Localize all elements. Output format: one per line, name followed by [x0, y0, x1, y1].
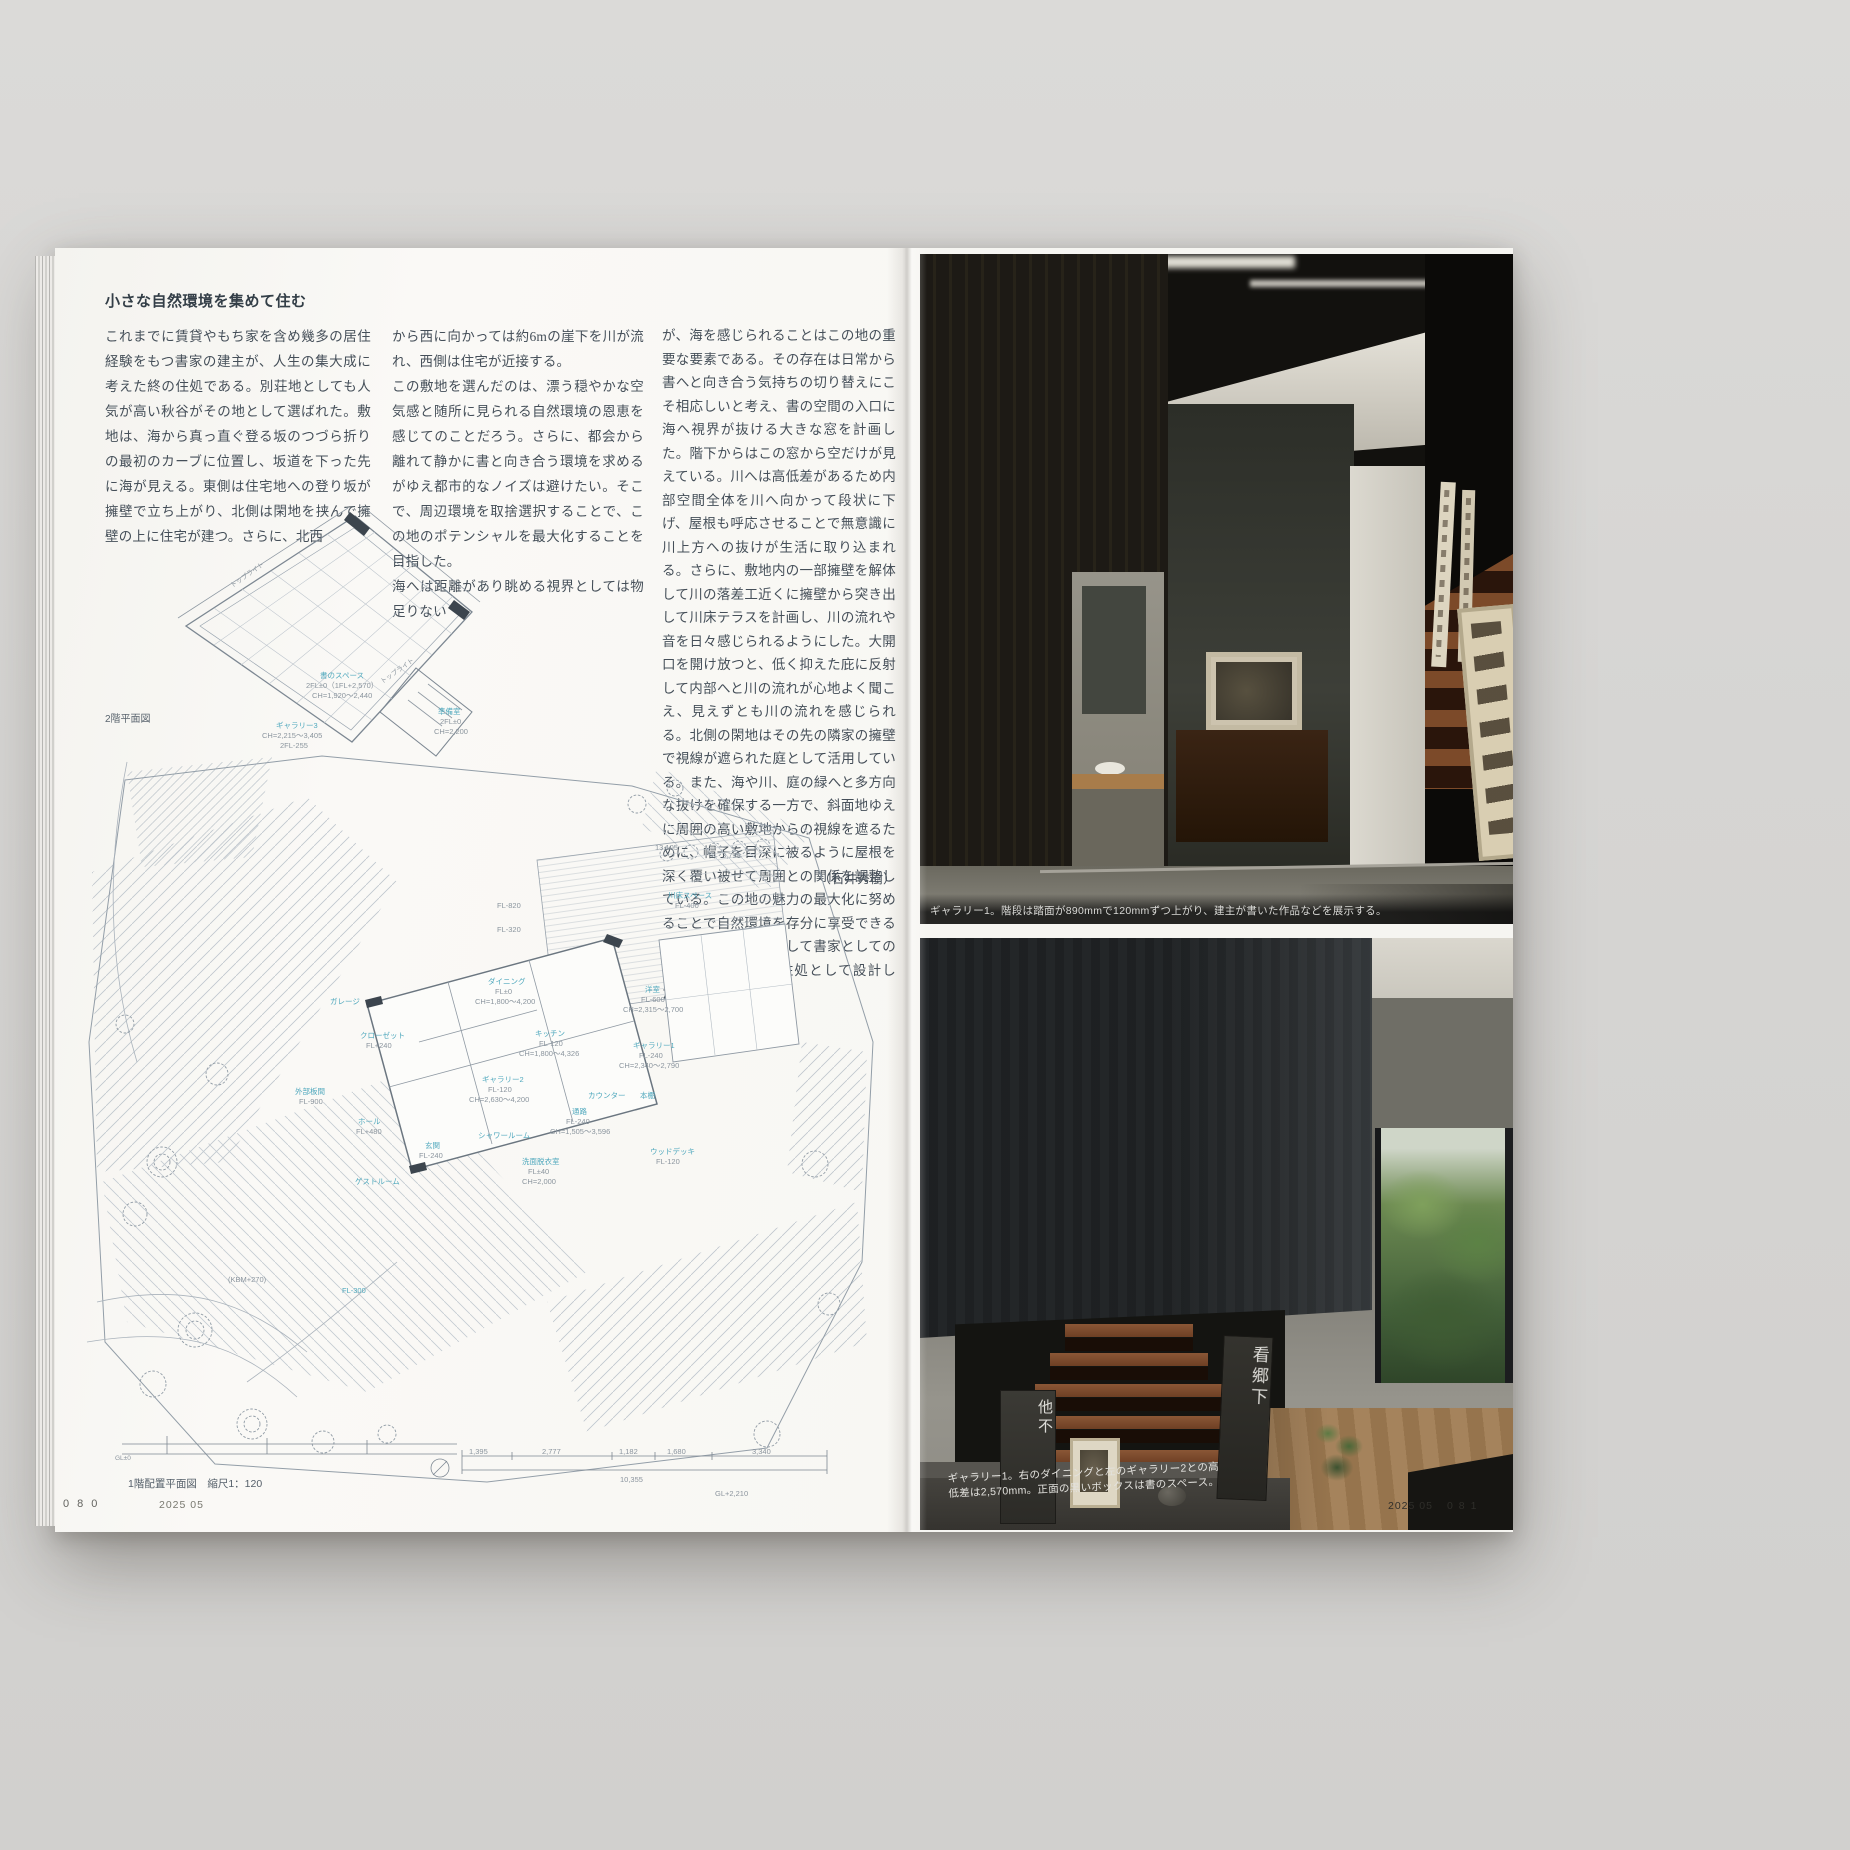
- calligraphy-text-left: 他不: [1001, 1399, 1055, 1437]
- plan-annotation-label: ウッドデッキ: [650, 1148, 695, 1156]
- plan-annotation-label: 1,395: [469, 1448, 488, 1456]
- plan-annotation-label: カウンター: [588, 1092, 626, 1100]
- plan-1f-caption: 1階配置平面図 縮尺1：120: [128, 1476, 262, 1491]
- left-page: 小さな自然環境を集めて住む これまでに賃貸やもち家を含め幾多の居住経験をもつ書家…: [55, 248, 905, 1532]
- plan-annotation-label: FL-240: [639, 1052, 663, 1060]
- plan-annotation-label: 2FL±0（1FL+2,570）: [306, 682, 378, 690]
- white-wall-volume: [1350, 466, 1432, 924]
- plan-annotation-label: FL-820: [497, 902, 521, 910]
- photo1-caption: ギャラリー1。階段は踏面が890mmで120mmずつ上がり、建主が書いた作品など…: [930, 903, 1387, 918]
- plan-annotation-label: ホール: [358, 1118, 381, 1126]
- plan-annotation-label: 1,182: [619, 1448, 638, 1456]
- black-box-volume: [920, 938, 1372, 1338]
- plan-2f-caption: 2階平面図: [105, 710, 151, 725]
- plan-annotation-label: 準備室: [438, 708, 461, 716]
- plan-annotation-label: GL+2,210: [715, 1490, 748, 1498]
- plan-annotation-label: 3,798: [722, 852, 741, 860]
- plan-annotation-label: FL±40: [528, 1168, 549, 1176]
- article-heading: 小さな自然環境を集めて住む: [105, 292, 307, 313]
- ceiling-light-slit-2: [1250, 280, 1440, 287]
- plan-annotation-label: FL-240: [419, 1152, 443, 1160]
- plan-annotation-label: CH=2,200: [434, 728, 468, 736]
- plan-annotation-label: FL-240: [566, 1118, 590, 1126]
- page-number-left: 080: [63, 1498, 105, 1510]
- plan-annotation-label: GL±0: [115, 1456, 131, 1463]
- issue-date-left: 2025 05: [159, 1499, 204, 1511]
- plan-annotation-label: FL+240: [366, 1042, 392, 1050]
- plan-annotation-label: FL-400: [675, 902, 699, 910]
- plan-annotation-label: CH=1,920〜2,440: [312, 692, 372, 700]
- washroom-mirror: [1082, 586, 1146, 714]
- plan-annotation-label: ギャラリー3: [276, 722, 318, 730]
- plan-annotation-label: クローゼット: [360, 1032, 405, 1040]
- plan-annotation-label: FL+480: [356, 1128, 382, 1136]
- magazine-spread: 小さな自然環境を集めて住む これまでに賃貸やもち家を含め幾多の居住経験をもつ書家…: [55, 248, 1513, 1532]
- page-number-right-value: 081: [1447, 1500, 1483, 1512]
- wood-counter: [1072, 774, 1164, 789]
- plan-annotation-label: CH=2,315〜2,700: [623, 1006, 683, 1014]
- plan-annotation-label: 2FL±0: [440, 718, 461, 726]
- plan-annotation-label: ガレージ: [330, 998, 360, 1006]
- plan-annotation-label: 玄関: [425, 1142, 440, 1150]
- plan-annotation-label: CH=1,800〜4,326: [519, 1050, 579, 1058]
- plan-annotation-label: ダイニング: [488, 978, 526, 986]
- plan-annotation-label: FL±0: [495, 988, 512, 996]
- plan-annotation-label: 1,680: [667, 1448, 686, 1456]
- window-frame: [1505, 1128, 1513, 1383]
- photo-backdrop: 小さな自然環境を集めて住む これまでに賃貸やもち家を含め幾多の居住経験をもつ書家…: [0, 0, 1850, 1850]
- plan-annotation-label: CH=2,630〜4,200: [469, 1096, 529, 1104]
- plan-annotation-label: ゲストルーム: [355, 1178, 400, 1186]
- plan-annotation-label: 2,777: [542, 1448, 561, 1456]
- calligraphy-board-right: 看郷下: [1216, 1335, 1273, 1501]
- plan-annotation-label: FL-900: [299, 1098, 323, 1106]
- wood-chest: [1176, 730, 1328, 842]
- plan-annotation-label: 洋室: [645, 986, 660, 994]
- plan-annotation-label: FL-120: [656, 1158, 680, 1166]
- framed-artwork-image: [1216, 662, 1292, 720]
- stair-step: [1035, 1384, 1223, 1397]
- plan-annotation-label: キッチン: [535, 1030, 565, 1038]
- photo-gallery-box: 他不 看郷下 ギャラリー1。右のダイニングと左のギャラリー2との高 低差は2,5…: [920, 938, 1513, 1530]
- plan-annotation-label: ギャラリー2: [482, 1076, 524, 1084]
- page-number-right: 2025 05081: [1388, 1500, 1483, 1512]
- plan-annotation-label: CH=2,340〜2,790: [619, 1062, 679, 1070]
- calligraphy-board-left: 他不: [1000, 1390, 1056, 1524]
- plan-annotation-label: シャワールーム: [478, 1132, 530, 1140]
- plan-annotation-label: 2FL-255: [280, 742, 308, 750]
- stair-step: [1050, 1353, 1208, 1366]
- plan-annotation-label: CH=1,800〜4,200: [475, 998, 535, 1006]
- plan-annotation-label: ギャラリー1: [633, 1042, 675, 1050]
- calligraphy-text-right: 看郷下: [1221, 1344, 1272, 1409]
- plan-annotation-label: FL-120: [539, 1040, 563, 1048]
- page-stack-edges: [35, 256, 55, 1526]
- stair-step: [1065, 1324, 1193, 1337]
- plan-annotation-label: 3,340: [752, 1448, 771, 1456]
- site-plan-1f: 13,1053,798川床スペースFL-400FL-820FL-320ダイニング…: [67, 742, 905, 1510]
- plan-annotation-label: 洗面脱衣室: [522, 1158, 560, 1166]
- issue-date-right: 2025 05: [1388, 1500, 1433, 1512]
- plan-annotation-label: FL-300: [342, 1287, 366, 1295]
- plan-annotation-label: 本棚: [640, 1092, 655, 1100]
- plan-annotation-label: 通路: [572, 1108, 587, 1116]
- plan-annotation-label: CH=2,215〜3,405: [262, 732, 322, 740]
- plan-annotation-label: 書のスペース: [320, 672, 364, 680]
- plan-annotation-label: 外部板間: [295, 1088, 325, 1096]
- plan-annotation-label: CH=1,505〜3,596: [550, 1128, 610, 1136]
- potted-plant: [1310, 1408, 1370, 1493]
- plan-annotation-label: (KBM+270): [228, 1276, 266, 1284]
- plan-annotation-label: FL-120: [488, 1086, 512, 1094]
- plan-annotation-label: 10,355: [620, 1476, 643, 1484]
- garden-window: [1375, 1128, 1513, 1383]
- plan-annotation-label: CH=2,000: [522, 1178, 556, 1186]
- site-plan-drawing: [67, 742, 905, 1510]
- plan-annotation-label: 13,105: [655, 844, 678, 852]
- floor-plan-2f: 書のスペース2FL±0（1FL+2,570）CH=1,920〜2,440準備室2…: [170, 504, 488, 762]
- plan-annotation-label: FL-320: [497, 926, 521, 934]
- plan-annotation-label: FL-600: [641, 996, 665, 1004]
- photo-gallery-stairs: ギャラリー1。階段は踏面が890mmで120mmずつ上がり、建主が書いた作品など…: [920, 254, 1513, 924]
- right-page: ギャラリー1。階段は踏面が890mmで120mmずつ上がり、建主が書いた作品など…: [905, 248, 1513, 1532]
- plan-annotation-label: 川床スペース: [668, 892, 712, 900]
